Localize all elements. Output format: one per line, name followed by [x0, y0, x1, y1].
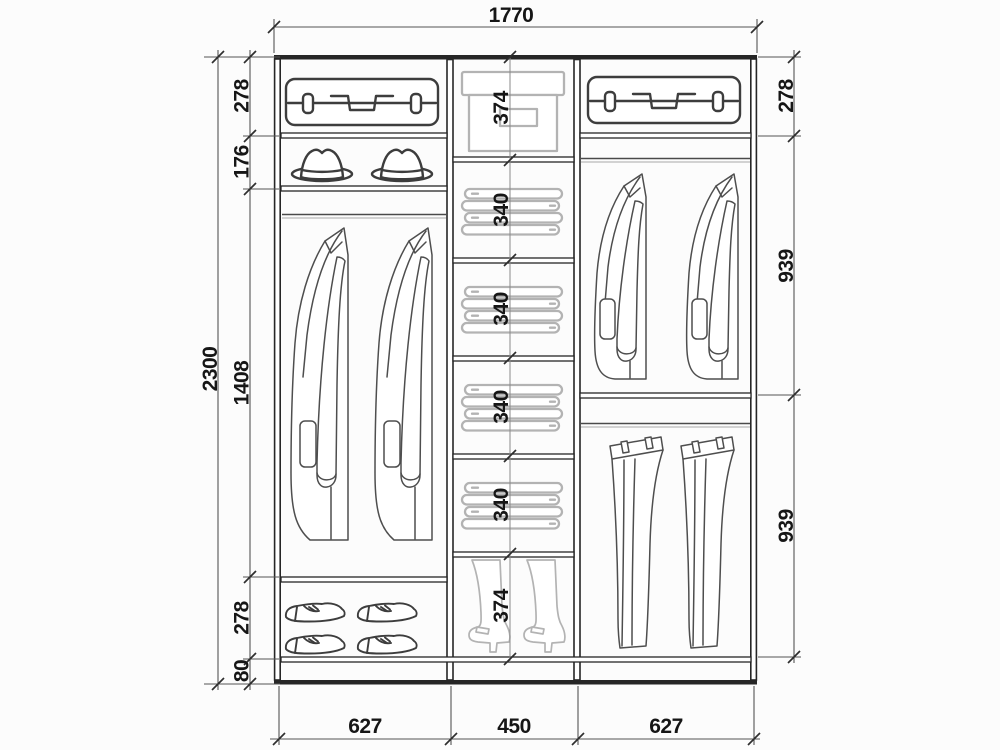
right-suitcase-shelf: [580, 133, 751, 138]
shoe-icon: [286, 603, 345, 621]
middle-shelf-4: [453, 454, 574, 459]
dim-overall-width: 1770: [268, 4, 763, 53]
dim-bottom-middle: 450: [497, 715, 531, 738]
dim-middle-shelf-3: 340: [490, 390, 513, 424]
hanging-rod-left: [282, 215, 446, 219]
dim-overall-width-label: 1770: [489, 4, 534, 27]
shoe-icon: [358, 635, 417, 653]
bottom-shelf: [281, 657, 751, 662]
dim-left-hat-shelf: 176: [231, 145, 254, 179]
storage-box-icon: [462, 72, 564, 151]
dim-bottom-right: 627: [649, 715, 683, 738]
hanging-coat-icon: [375, 228, 432, 540]
bottom-board: [274, 680, 757, 685]
dim-left-sections: 278 176 1408 278 80: [231, 50, 280, 690]
left-shoe-shelf: [281, 577, 447, 582]
hanging-coat-icon: [291, 228, 348, 540]
hanging-trousers-icon: [681, 437, 734, 648]
divider-left: [447, 60, 453, 681]
hanging-rod-right-top: [581, 159, 750, 163]
high-boot-icon: [524, 560, 565, 652]
middle-shelf-3: [453, 356, 574, 361]
wardrobe-technical-drawing: 1770 2300 278 176 1408 278 80 374: [0, 0, 1000, 750]
dim-middle-shelf-1: 340: [490, 193, 513, 227]
dim-right-jackets: 939: [775, 249, 798, 283]
dim-right-suitcase-shelf: 278: [775, 78, 798, 112]
hanging-rod-right-bottom: [581, 424, 750, 428]
right-side-panel: [751, 59, 757, 680]
left-side-panel: [275, 59, 281, 680]
left-suitcase-shelf: [281, 133, 447, 138]
dim-left-suitcase-shelf: 278: [231, 78, 254, 112]
dim-right-trousers: 939: [775, 509, 798, 543]
hanging-trousers-icon: [610, 437, 663, 648]
drawing-svg: 1770 2300 278 176 1408 278 80 374: [0, 0, 1000, 750]
suitcase-icon: [286, 79, 438, 125]
middle-shelf-5: [453, 552, 574, 557]
fedora-hat-icon: [372, 150, 432, 181]
dim-middle-box-shelf: 374: [490, 90, 513, 124]
fedora-hat-icon: [292, 150, 352, 181]
dim-left-hanging: 1408: [231, 360, 254, 406]
dim-middle-boots-shelf: 374: [490, 588, 513, 622]
divider-right: [574, 60, 580, 681]
shoe-icon: [358, 603, 417, 621]
left-hat-shelf: [281, 186, 447, 191]
right-middle-shelf: [580, 393, 751, 398]
dim-right-sections: 278 939 939: [758, 50, 801, 663]
dim-bottom-widths: 627 450 627: [270, 686, 760, 745]
hanging-jacket-icon: [595, 174, 646, 379]
dim-middle-shelf-2: 340: [490, 292, 513, 326]
dim-left-plinth: 80: [231, 660, 254, 682]
dim-bottom-left: 627: [348, 715, 382, 738]
dim-overall-height-label: 2300: [199, 347, 222, 392]
dim-left-shoe-shelf: 278: [231, 600, 254, 634]
middle-shelf-1: [453, 157, 574, 162]
suitcase-icon: [588, 77, 740, 123]
dim-middle-shelf-4: 340: [490, 488, 513, 522]
shoe-icon: [286, 635, 345, 653]
top-board: [274, 55, 757, 60]
hanging-jacket-icon: [687, 174, 738, 379]
middle-shelf-2: [453, 258, 574, 263]
